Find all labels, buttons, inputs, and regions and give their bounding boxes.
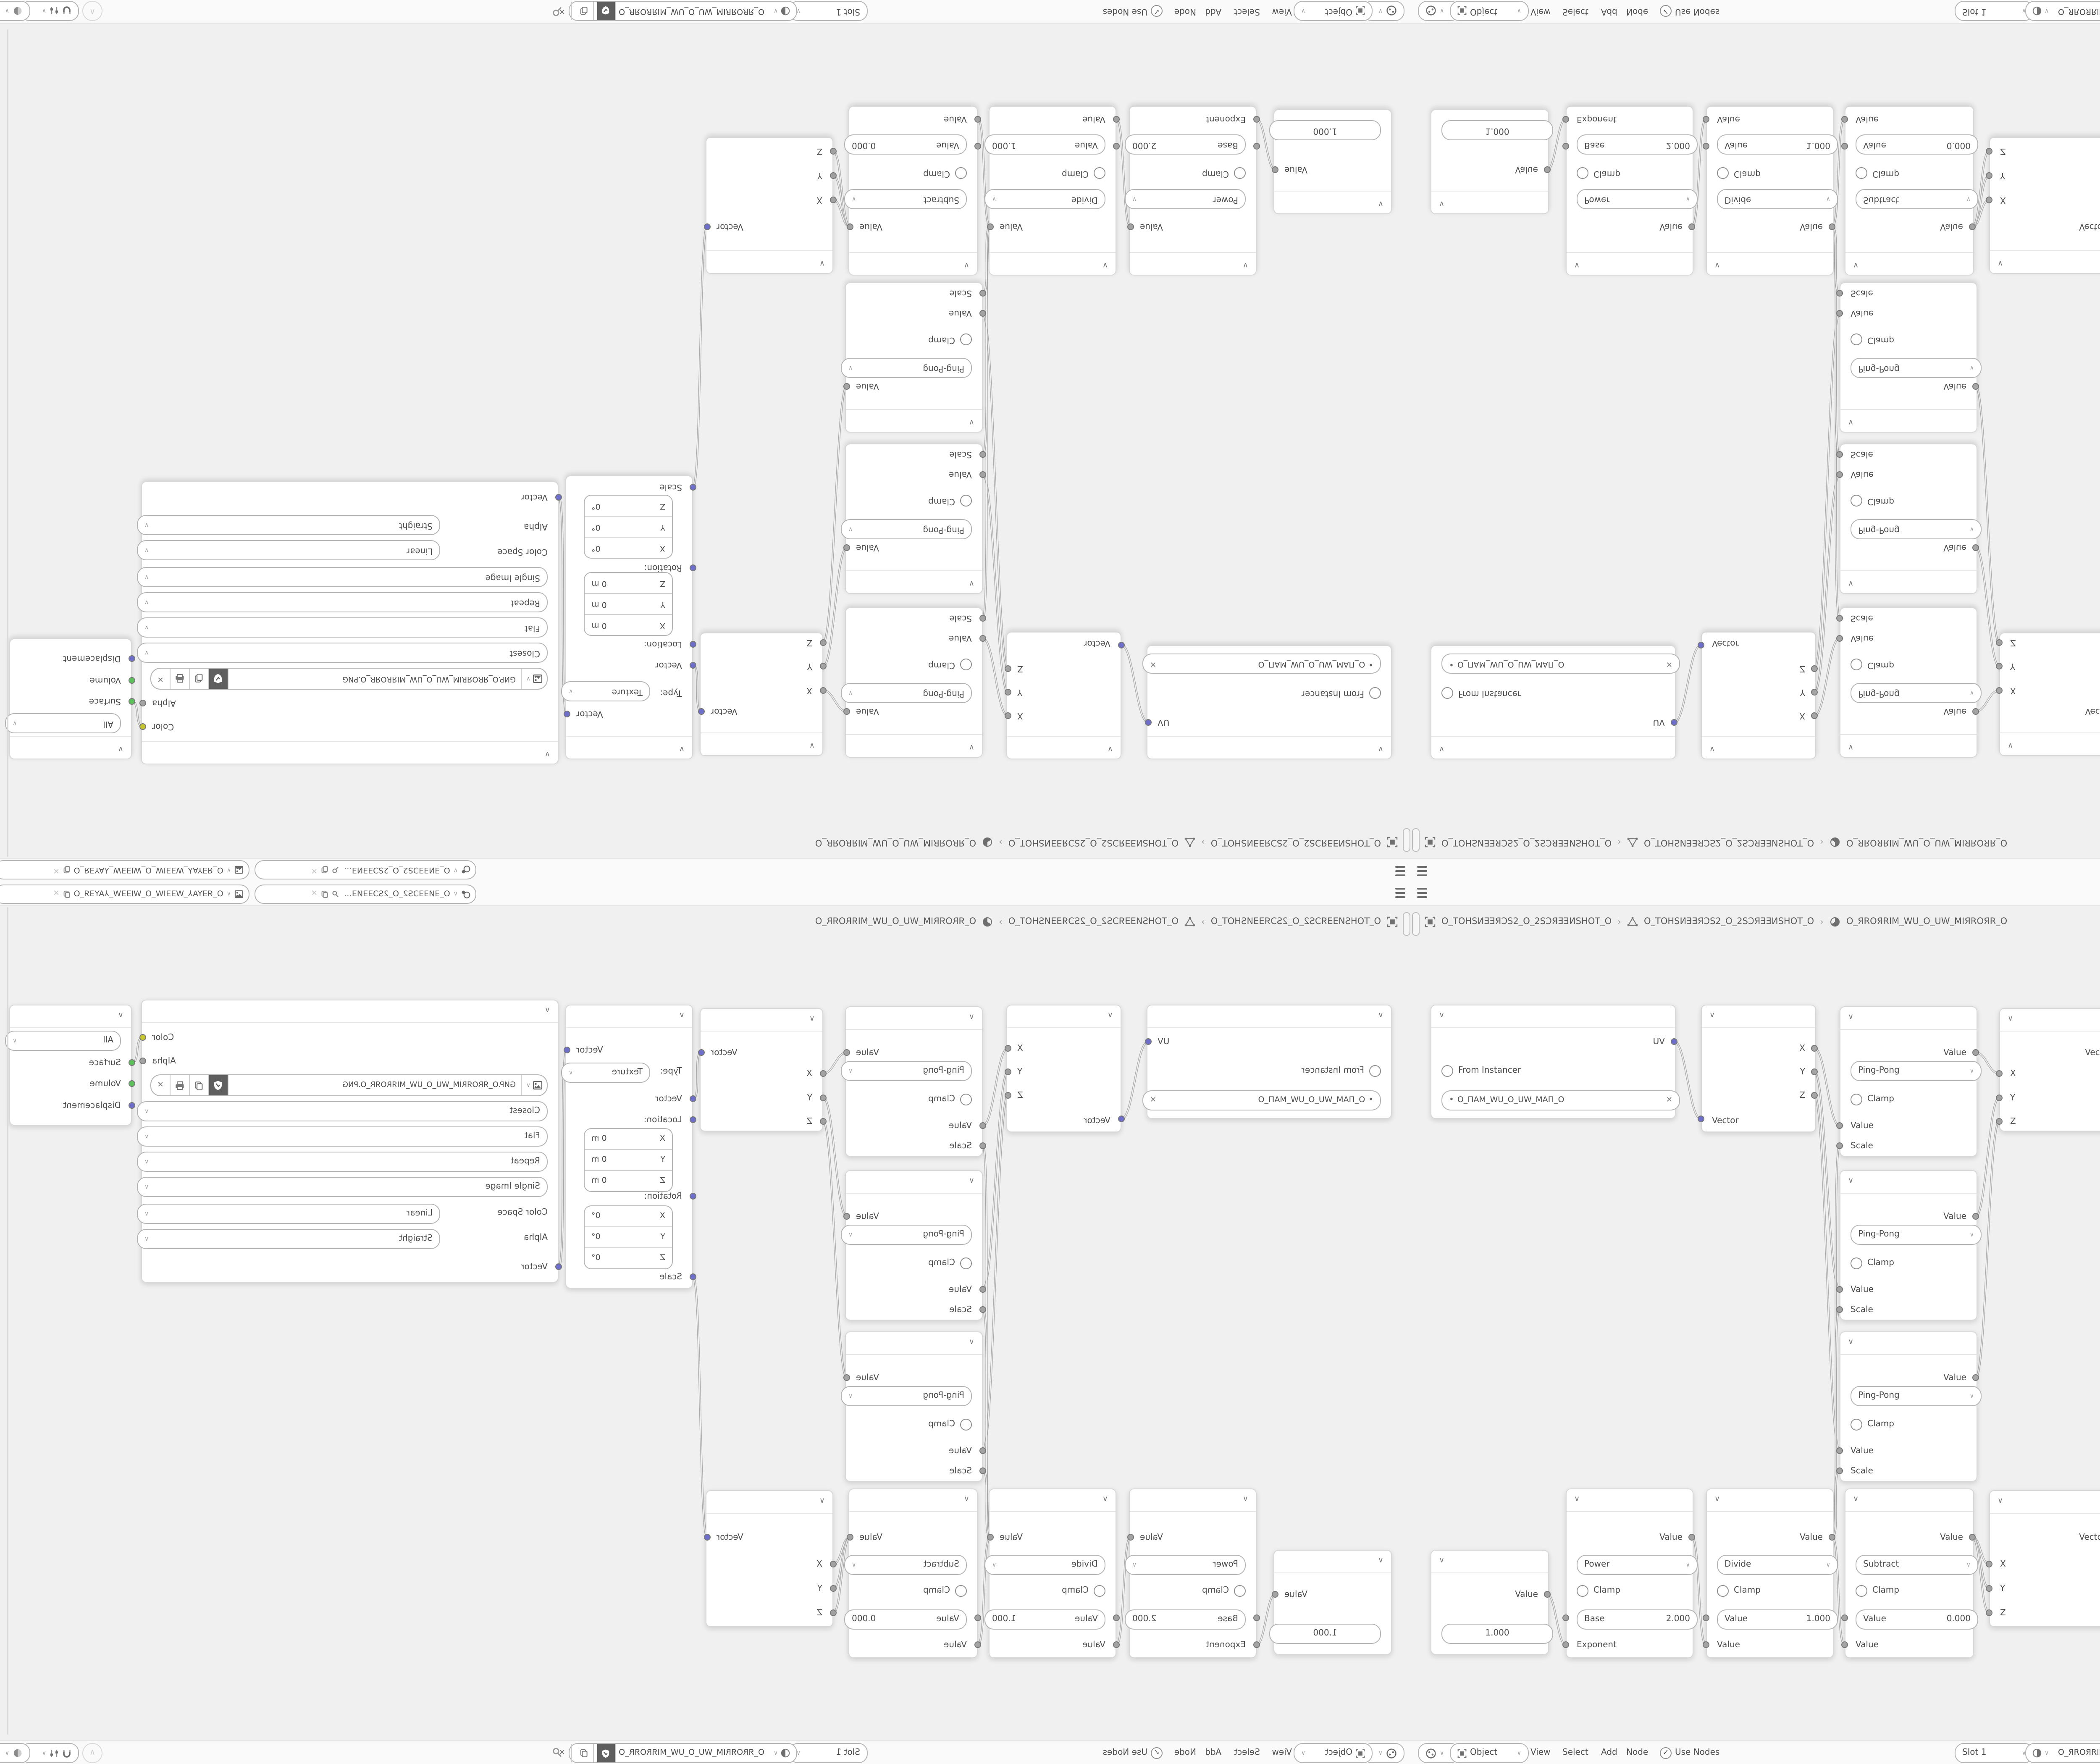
math-operation-select[interactable]: Subtract∨ xyxy=(1856,1555,1978,1575)
collapse-chevron-icon[interactable]: ∨ xyxy=(969,417,974,425)
menu-node[interactable]: Node xyxy=(1626,1749,1648,1757)
node-header[interactable]: ∨ xyxy=(1007,736,1121,759)
collapse-chevron-icon[interactable]: ∨ xyxy=(1714,260,1720,268)
node-header[interactable]: ∨ xyxy=(846,409,982,432)
value-field[interactable]: Value0.000 xyxy=(1856,1609,1978,1630)
unlink-image-button[interactable]: ✕ xyxy=(151,1075,171,1095)
socket-div-val[interactable] xyxy=(1113,143,1120,150)
socket-c2-z[interactable] xyxy=(830,1609,837,1616)
collapse-chevron-icon[interactable]: ∨ xyxy=(1848,579,1853,586)
value-field[interactable]: Value1.000 xyxy=(984,134,1105,155)
collapse-chevron-icon[interactable]: ∨ xyxy=(819,259,825,266)
node-separate-xyz[interactable]: ∨ X Y Z Vector xyxy=(1006,1005,1121,1132)
location-x-field[interactable]: X0 m xyxy=(585,1129,672,1149)
socket-sep-in[interactable] xyxy=(1698,1116,1704,1122)
base-field[interactable]: Base2.000 xyxy=(1125,134,1246,155)
socket-sep-y[interactable] xyxy=(1005,689,1011,696)
socket-map-out[interactable] xyxy=(564,711,570,717)
math-operation-select[interactable]: Ping-Pong∨ xyxy=(1851,358,1982,378)
pin-icon[interactable] xyxy=(552,6,563,17)
unlink-icon[interactable]: ✕ xyxy=(53,890,60,898)
node-header[interactable]: ∨ xyxy=(846,570,982,593)
socket-pow-exp[interactable] xyxy=(1253,116,1260,123)
node-header[interactable]: ∨ xyxy=(10,1005,131,1028)
location-z-field[interactable]: Z0 m xyxy=(585,573,672,594)
socket-pp2-out[interactable] xyxy=(1972,1213,1979,1220)
toolbar-toggle-tab[interactable] xyxy=(1403,828,1410,852)
alpha-mode-select[interactable]: Straight∨ xyxy=(137,515,440,535)
node-header[interactable]: ∨ xyxy=(1840,570,1977,593)
pin-icon[interactable] xyxy=(332,890,339,899)
collapse-chevron-icon[interactable]: ∨ xyxy=(969,1178,974,1185)
collapse-chevron-icon[interactable]: ∨ xyxy=(545,1007,550,1015)
menu-node[interactable]: Node xyxy=(1626,7,1648,15)
math-operation-select[interactable]: Divide∨ xyxy=(1717,189,1838,209)
node-math-pingpong-z[interactable]: ∨ Value Ping-Pong∨ Clamp Value Scale xyxy=(845,282,983,433)
scrollbar[interactable] xyxy=(7,907,8,1735)
socket-pow-base[interactable] xyxy=(1253,1614,1260,1621)
collapse-chevron-icon[interactable]: ∨ xyxy=(809,741,815,748)
output-target-select[interactable]: All∨ xyxy=(5,1031,121,1051)
socket-sub-out[interactable] xyxy=(847,223,853,230)
clamp-checkbox[interactable] xyxy=(1851,333,1862,345)
socket-div-out[interactable] xyxy=(1829,223,1835,230)
socket-sep-z[interactable] xyxy=(1005,1092,1011,1099)
math-operation-select[interactable]: Divide∨ xyxy=(1717,1555,1838,1575)
socket-mo-volume[interactable] xyxy=(129,677,135,684)
node-value[interactable]: ∨ Value 1.000 xyxy=(1273,109,1392,214)
source-select[interactable]: Single Image∨ xyxy=(137,567,548,587)
clamp-checkbox[interactable] xyxy=(1851,1094,1862,1105)
socket-c1-out[interactable] xyxy=(698,708,705,715)
base-field[interactable]: Base2.000 xyxy=(1577,1609,1698,1630)
use-nodes-checkbox[interactable]: ✓ xyxy=(1660,5,1672,17)
node-combine-xyz-scale[interactable]: ∨ Vector X Y Z xyxy=(706,1490,833,1627)
socket-sub-in[interactable] xyxy=(974,116,981,123)
node-header[interactable]: ∨ xyxy=(1274,191,1391,213)
clamp-checkbox[interactable] xyxy=(1851,1257,1862,1269)
node-header[interactable]: ∨ xyxy=(1431,191,1548,213)
node-header[interactable]: ∨ xyxy=(1130,1489,1256,1512)
node-header[interactable]: ∨ xyxy=(1707,1489,1833,1512)
node-header[interactable]: ∨ xyxy=(142,1000,558,1023)
node-header[interactable]: ∨ xyxy=(1007,1005,1121,1028)
collapse-chevron-icon[interactable]: ∨ xyxy=(1108,1012,1113,1020)
fake-user-button[interactable] xyxy=(209,669,228,689)
collapse-chevron-icon[interactable]: ∨ xyxy=(679,1012,685,1020)
node-uv-map[interactable]: ∨ UV From Instancer • O_ПAM_WU_O_UW_MAП_… xyxy=(1431,1005,1676,1119)
socket-pp1-scale[interactable] xyxy=(1836,1142,1843,1149)
node-header[interactable]: ∨ xyxy=(1707,252,1833,275)
socket-sub-out[interactable] xyxy=(1969,223,1976,230)
node-material-output[interactable]: ∨ All∨ Surface Volume Displacement xyxy=(9,638,132,759)
node-mapping[interactable]: ∨ Vector Type: Texture∨ Vector Location:… xyxy=(565,475,693,759)
node-combine-xyz-scale[interactable]: ∨ Vector X Y Z xyxy=(706,137,833,274)
socket-div-in[interactable] xyxy=(1113,1641,1120,1648)
socket-div-val[interactable] xyxy=(1703,1614,1709,1621)
socket-map-rot[interactable] xyxy=(690,564,696,571)
socket-c2-x[interactable] xyxy=(830,1561,837,1567)
rotation-y-field[interactable]: Y0° xyxy=(585,1226,672,1247)
socket-sep-in[interactable] xyxy=(1698,642,1704,648)
use-nodes-checkbox[interactable]: ✓ xyxy=(1151,5,1163,17)
node-image-texture[interactable]: ∨ Color Alpha ∨ GИP.O_ЯROЯRIM_WU_O_UW_MI… xyxy=(141,481,559,764)
fake-user-button[interactable] xyxy=(209,1075,228,1095)
breadcrumb-object[interactable]: O_TOHSИƎƎЯƆS2_O_2SƆЯƎƎИSHOT_O xyxy=(1441,838,1612,847)
pin-icon[interactable] xyxy=(552,1747,563,1758)
socket-sep-y[interactable] xyxy=(1811,689,1818,696)
menu-view[interactable]: View xyxy=(1272,1749,1292,1757)
use-nodes-checkbox[interactable]: ✓ xyxy=(1660,1747,1672,1759)
math-operation-select[interactable]: Ping-Pong∨ xyxy=(841,358,972,378)
node-header[interactable]: ∨ xyxy=(846,1007,982,1030)
location-y-field[interactable]: Y0 m xyxy=(585,594,672,615)
socket-pp3-val[interactable] xyxy=(1836,310,1843,317)
socket-pp2-val[interactable] xyxy=(979,1286,986,1293)
breadcrumb-object[interactable]: O_TOHSИƎƎЯƆS2_O_2SƆЯƎƎИSHOT_O xyxy=(1441,917,1612,926)
node-header[interactable]: ∨ xyxy=(142,741,558,764)
collapse-chevron-icon[interactable]: ∨ xyxy=(969,743,974,750)
clamp-checkbox[interactable] xyxy=(1094,1585,1105,1597)
node-uv-map[interactable]: ∨ UV From Instancer • O_ПAM_WU_O_UW_MAП_… xyxy=(1147,645,1392,759)
socket-val-out[interactable] xyxy=(1272,166,1278,173)
collapse-chevron-icon[interactable]: ∨ xyxy=(1439,744,1444,752)
node-uv-map[interactable]: ∨ UV From Instancer • O_ПAM_WU_O_UW_MAП_… xyxy=(1147,1005,1392,1119)
uv-map-select[interactable]: • O_ПAM_WU_O_UW_MAП_O ✕ xyxy=(1441,1090,1680,1110)
menu-hamburger-icon[interactable] xyxy=(1417,865,1427,876)
material-selector[interactable]: ∨ O_ЯROЯRIM_WU_O_UW_MIЯROЯR_O ✕ xyxy=(569,1,797,21)
output-target-select[interactable]: All∨ xyxy=(5,713,121,733)
shader-type-select[interactable]: Object ∨ xyxy=(1294,1,1373,21)
socket-sep-z[interactable] xyxy=(1811,1092,1818,1099)
shader-type-select[interactable]: Object ∨ xyxy=(1450,1743,1529,1763)
menu-add[interactable]: Add xyxy=(1205,1749,1221,1757)
copy-icon[interactable] xyxy=(321,890,328,899)
clear-icon[interactable]: ✕ xyxy=(1150,660,1156,667)
socket-mo-disp[interactable] xyxy=(129,655,135,662)
toolbar-toggle-tab[interactable] xyxy=(1403,912,1410,936)
clamp-checkbox[interactable] xyxy=(960,1094,972,1105)
socket-c1-z[interactable] xyxy=(1996,639,2003,646)
node-header[interactable]: ∨ xyxy=(701,1009,822,1032)
rotation-fields[interactable]: X0° Y0° Z0° xyxy=(584,495,673,559)
socket-pp3-scale[interactable] xyxy=(1836,1467,1843,1474)
socket-c2-y[interactable] xyxy=(1986,172,1992,179)
from-instancer-checkbox[interactable] xyxy=(1441,1065,1453,1077)
socket-pow-out[interactable] xyxy=(1127,1534,1134,1541)
socket-sep-x[interactable] xyxy=(1005,1045,1011,1052)
node-header[interactable]: ∨ xyxy=(849,252,977,275)
location-z-field[interactable]: Z0 m xyxy=(585,1170,672,1191)
collapse-chevron-icon[interactable]: ∨ xyxy=(964,260,969,268)
clamp-checkbox[interactable] xyxy=(1717,1585,1729,1597)
collapse-chevron-icon[interactable]: ∨ xyxy=(969,579,974,586)
socket-div-out[interactable] xyxy=(987,1534,994,1541)
node-header[interactable]: ∨ xyxy=(701,732,822,755)
breadcrumb-mesh[interactable]: O_TOHSИƎƎЯƆS2_O_2SƆЯƎƎИSHOT_O xyxy=(1008,838,1179,847)
socket-div-val[interactable] xyxy=(1703,143,1709,150)
image-browse-button[interactable]: ∨ xyxy=(522,669,547,689)
clamp-checkbox[interactable] xyxy=(1856,167,1867,179)
math-operation-select[interactable]: Ping-Pong∨ xyxy=(1851,1386,1982,1406)
socket-sub-val[interactable] xyxy=(1841,1614,1848,1621)
socket-map-scale[interactable] xyxy=(690,1273,696,1280)
socket-pp3-out[interactable] xyxy=(1972,1374,1979,1381)
pack-image-button[interactable] xyxy=(171,669,190,689)
node-math-pingpong-y[interactable]: ∨ Value Ping-Pong∨ Clamp Value Scale xyxy=(845,1170,983,1320)
socket-c1-x[interactable] xyxy=(820,687,827,694)
projection-select[interactable]: Flat∨ xyxy=(137,617,548,638)
node-math-pingpong-z[interactable]: ∨ Value Ping-Pong∨ Clamp Value Scale xyxy=(1840,1331,1977,1482)
clamp-checkbox[interactable] xyxy=(955,167,967,179)
menu-select[interactable]: Select xyxy=(1562,1749,1588,1757)
collapse-chevron-icon[interactable]: ∨ xyxy=(1574,260,1580,268)
clamp-checkbox[interactable] xyxy=(960,1257,972,1269)
collapse-chevron-icon[interactable]: ∨ xyxy=(2008,741,2013,748)
socket-pp2-val[interactable] xyxy=(979,471,986,478)
collapse-chevron-icon[interactable]: ∨ xyxy=(1848,1178,1853,1185)
node-header[interactable]: ∨ xyxy=(1147,736,1391,759)
viewlayer-selector[interactable]: ∨ O_ЯƎYA⅄_WƎƎIW_O_WIƎƎW_⅄AYƎЯ_O ✕ xyxy=(0,885,249,904)
socket-sep-x[interactable] xyxy=(1811,712,1818,719)
location-fields[interactable]: X0 m Y0 m Z0 m xyxy=(584,572,673,636)
overlay-toggle-button[interactable]: ∧ xyxy=(82,1743,102,1763)
copy-material-button[interactable] xyxy=(575,2,593,20)
collapse-chevron-icon[interactable]: ∨ xyxy=(1574,1496,1580,1504)
collapse-chevron-icon[interactable]: ∨ xyxy=(1378,1012,1383,1020)
breadcrumb-material[interactable]: O_ЯROЯRIM_WU_O_UW_MIЯROЯR_O xyxy=(815,917,976,926)
material-selector[interactable]: ∨ O_ЯROЯRIM_WU_O_UW_MIЯROЯR_O ✕ xyxy=(569,1743,797,1763)
math-operation-select[interactable]: Power∨ xyxy=(1577,1555,1698,1575)
socket-map-out[interactable] xyxy=(564,1047,570,1053)
socket-map-rot[interactable] xyxy=(690,1193,696,1200)
rotation-x-field[interactable]: X0° xyxy=(585,538,672,558)
base-field[interactable]: Base2.000 xyxy=(1125,1609,1246,1630)
collapse-chevron-icon[interactable]: ∨ xyxy=(2008,1016,2013,1023)
node-math-divide[interactable]: ∨ Value Divide∨ Clamp Value1.000 Value xyxy=(989,106,1116,276)
shader-type-select[interactable]: Object ∨ xyxy=(1294,1743,1373,1763)
node-header[interactable]: ∨ xyxy=(706,1491,832,1514)
socket-pow-exp[interactable] xyxy=(1562,116,1569,123)
material-slot-select[interactable]: Slot 1 ∨ xyxy=(789,1743,868,1763)
node-math-divide[interactable]: ∨ Value Divide∨ Clamp Value1.000 Value xyxy=(1706,106,1834,276)
socket-c1-y[interactable] xyxy=(1996,1095,2003,1101)
math-operation-select[interactable]: Power∨ xyxy=(1577,189,1698,209)
socket-pp3-scale[interactable] xyxy=(979,290,986,297)
node-header[interactable]: ∨ xyxy=(1567,252,1693,275)
copy-image-button[interactable] xyxy=(190,669,209,689)
value-field[interactable]: Value0.000 xyxy=(1856,134,1978,155)
socket-val-out[interactable] xyxy=(1544,1591,1551,1598)
node-header[interactable]: ∨ xyxy=(1845,252,1973,275)
collapse-chevron-icon[interactable]: ∨ xyxy=(1848,417,1853,425)
node-math-pingpong-y[interactable]: ∨ Value Ping-Pong∨ Clamp Value Scale xyxy=(1840,444,1977,594)
material-browse-button[interactable]: ∨ xyxy=(2026,1748,2055,1758)
collapse-chevron-icon[interactable]: ∨ xyxy=(1378,199,1383,207)
node-header[interactable]: ∨ xyxy=(1130,252,1256,275)
math-operation-select[interactable]: Ping-Pong∨ xyxy=(841,1061,972,1081)
node-header[interactable]: ∨ xyxy=(1431,1005,1675,1028)
socket-pow-out[interactable] xyxy=(1688,1534,1695,1541)
shader-type-select[interactable]: Object ∨ xyxy=(1450,1,1529,21)
collapse-chevron-icon[interactable]: ∨ xyxy=(1439,199,1444,207)
socket-img-alpha[interactable] xyxy=(139,1058,146,1064)
collapse-chevron-icon[interactable]: ∨ xyxy=(1243,260,1248,268)
socket-div-in[interactable] xyxy=(1113,116,1120,123)
socket-c2-out[interactable] xyxy=(704,223,711,230)
node-mapping[interactable]: ∨ Vector Type: Texture∨ Vector Location:… xyxy=(565,1005,693,1289)
toolbar-toggle-tab[interactable] xyxy=(1412,912,1420,936)
socket-pp1-out[interactable] xyxy=(843,1049,850,1056)
collapse-chevron-icon[interactable]: ∨ xyxy=(1848,1339,1853,1347)
rotation-z-field[interactable]: Z0° xyxy=(585,496,672,517)
unlink-image-button[interactable]: ✕ xyxy=(151,669,171,689)
value-field[interactable]: 1.000 xyxy=(1269,1624,1381,1644)
material-browse-button[interactable]: ∨ xyxy=(768,1748,796,1758)
clamp-checkbox[interactable] xyxy=(1717,167,1729,179)
collapse-chevron-icon[interactable]: ∨ xyxy=(819,1498,825,1505)
node-header[interactable]: ∨ xyxy=(1845,1489,1973,1512)
node-header[interactable]: ∨ xyxy=(990,1489,1116,1512)
socket-c1-x[interactable] xyxy=(1996,687,2003,694)
location-y-field[interactable]: Y0 m xyxy=(585,1149,672,1170)
node-math-subtract[interactable]: ∨ Value Subtract∨ Clamp Value0.000 Value xyxy=(848,106,978,276)
socket-div-in[interactable] xyxy=(1703,116,1709,123)
menu-hamburger-icon[interactable] xyxy=(1395,865,1405,876)
node-header[interactable]: ∨ xyxy=(1702,1005,1815,1028)
node-header[interactable]: ∨ xyxy=(1840,1007,1977,1030)
socket-img-alpha[interactable] xyxy=(139,700,146,706)
node-header[interactable]: ∨ xyxy=(1840,1332,1977,1355)
breadcrumb-object[interactable]: O_TOHSИƎƎЯƆS2_O_2SƆЯƎƎИSHOT_O xyxy=(1211,838,1381,847)
value-field[interactable]: Value0.000 xyxy=(844,1609,967,1630)
socket-c2-x[interactable] xyxy=(1986,1561,1992,1567)
math-operation-select[interactable]: Power∨ xyxy=(1125,189,1246,209)
uv-map-select[interactable]: • O_ПAM_WU_O_UW_MAП_O ✕ xyxy=(1441,654,1680,674)
node-image-texture[interactable]: ∨ Color Alpha ∨ GИP.O_ЯROЯRIM_WU_O_UW_MI… xyxy=(141,1000,559,1283)
socket-c1-out[interactable] xyxy=(698,1049,705,1056)
socket-sep-z[interactable] xyxy=(1005,665,1011,672)
breadcrumb-material[interactable]: O_ЯROЯRIM_WU_O_UW_MIЯROЯR_O xyxy=(815,838,976,847)
breadcrumb-material[interactable]: O_ЯROЯRIM_WU_O_UW_MIЯROЯR_O xyxy=(1846,917,2007,926)
socket-sub-val[interactable] xyxy=(1841,143,1848,150)
node-header[interactable]: ∨ xyxy=(1431,736,1675,759)
value-field[interactable]: 1.000 xyxy=(1269,120,1381,140)
socket-sep-x[interactable] xyxy=(1811,1045,1818,1052)
clamp-checkbox[interactable] xyxy=(1577,1585,1588,1597)
socket-pp1-scale[interactable] xyxy=(1836,615,1843,622)
node-header[interactable]: ∨ xyxy=(846,1171,982,1194)
socket-pp1-out[interactable] xyxy=(843,708,850,715)
math-operation-select[interactable]: Ping-Pong∨ xyxy=(1851,1061,1982,1081)
collapse-chevron-icon[interactable]: ∨ xyxy=(118,744,123,752)
base-field[interactable]: Base2.000 xyxy=(1577,134,1698,155)
value-field[interactable]: Value1.000 xyxy=(1717,1609,1838,1630)
unlink-icon[interactable]: ✕ xyxy=(53,866,60,874)
scrollbar[interactable] xyxy=(7,29,8,857)
node-uv-map[interactable]: ∨ UV From Instancer • O_ПAM_WU_O_UW_MAП_… xyxy=(1431,645,1676,759)
collapse-chevron-icon[interactable]: ∨ xyxy=(1439,1012,1444,1020)
from-instancer-checkbox[interactable] xyxy=(1369,1065,1381,1077)
clamp-checkbox[interactable] xyxy=(1577,167,1588,179)
math-operation-select[interactable]: Ping-Pong∨ xyxy=(841,1225,972,1245)
socket-img-color[interactable] xyxy=(139,723,146,730)
clamp-checkbox[interactable] xyxy=(960,495,972,507)
math-operation-select[interactable]: Ping-Pong∨ xyxy=(1851,1225,1982,1245)
socket-c2-y[interactable] xyxy=(830,1585,837,1592)
socket-sub-in[interactable] xyxy=(1841,1641,1848,1648)
node-combine-xyz[interactable]: ∨ Vector X Y Z xyxy=(700,633,823,756)
node-header[interactable]: ∨ xyxy=(1702,736,1815,759)
socket-c2-x[interactable] xyxy=(830,197,837,203)
node-math-pingpong-x[interactable]: ∨ Value Ping-Pong∨ Clamp Value Scale xyxy=(845,607,983,758)
socket-pp3-val[interactable] xyxy=(979,1447,986,1454)
node-math-subtract[interactable]: ∨ Value Subtract∨ Clamp Value0.000 Value xyxy=(848,1488,978,1658)
socket-pp1-out[interactable] xyxy=(1972,708,1979,715)
socket-c1-y[interactable] xyxy=(820,1095,827,1101)
breadcrumb-mesh[interactable]: O_TOHSИƎƎЯƆS2_O_2SƆЯƎƎИSHOT_O xyxy=(1644,917,1814,926)
node-combine-xyz-scale[interactable]: ∨ Vector X Y Z xyxy=(1989,1490,2100,1627)
socket-sep-z[interactable] xyxy=(1811,665,1818,672)
menu-select[interactable]: Select xyxy=(1234,7,1260,15)
from-instancer-checkbox[interactable] xyxy=(1369,687,1381,699)
socket-mo-volume[interactable] xyxy=(129,1080,135,1087)
collapse-chevron-icon[interactable]: ∨ xyxy=(1853,260,1858,268)
collapse-chevron-icon[interactable]: ∨ xyxy=(1853,1496,1858,1504)
socket-c2-y[interactable] xyxy=(830,172,837,179)
alpha-mode-select[interactable]: Straight∨ xyxy=(137,1229,440,1249)
unlink-icon[interactable]: ✕ xyxy=(311,890,318,898)
node-header[interactable]: ∨ xyxy=(2000,732,2100,755)
socket-c1-y[interactable] xyxy=(820,663,827,669)
node-math-pingpong-y[interactable]: ∨ Value Ping-Pong∨ Clamp Value Scale xyxy=(845,444,983,594)
node-combine-xyz[interactable]: ∨ Vector X Y Z xyxy=(700,1008,823,1131)
socket-sub-out[interactable] xyxy=(847,1534,853,1541)
node-math-divide[interactable]: ∨ Value Divide∨ Clamp Value1.000 Value xyxy=(1706,1488,1834,1658)
scene-selector[interactable]: ∨ O_ƎͶƎƎƆS2_O_2SƆƎƎͶƎ_O ✕ xyxy=(255,885,476,904)
node-material-output[interactable]: ∨ All∨ Surface Volume Displacement xyxy=(9,1005,132,1126)
rotation-y-field[interactable]: Y0° xyxy=(585,517,672,538)
node-header[interactable]: ∨ xyxy=(1840,409,1977,432)
socket-img-vec[interactable] xyxy=(555,494,562,501)
node-header[interactable]: ∨ xyxy=(1840,734,1977,757)
collapse-chevron-icon[interactable]: ∨ xyxy=(1709,1012,1715,1020)
socket-c2-out[interactable] xyxy=(704,1534,711,1541)
node-math-power[interactable]: ∨ Value Power∨ Clamp Base2.000 Exponent xyxy=(1566,106,1693,276)
socket-pp1-val[interactable] xyxy=(1836,635,1843,642)
node-header[interactable]: ∨ xyxy=(1431,1551,1548,1573)
node-value[interactable]: ∨ Value 1.000 xyxy=(1431,109,1549,214)
math-operation-select[interactable]: Divide∨ xyxy=(984,189,1105,209)
projection-select[interactable]: Flat∨ xyxy=(137,1126,548,1147)
value-field[interactable]: Value0.000 xyxy=(844,134,967,155)
node-math-pingpong-z[interactable]: ∨ Value Ping-Pong∨ Clamp Value Scale xyxy=(1840,282,1977,433)
collapse-chevron-icon[interactable]: ∨ xyxy=(1108,744,1113,752)
material-browse-button[interactable]: ∨ xyxy=(2026,6,2055,16)
socket-pp1-scale[interactable] xyxy=(979,615,986,622)
node-combine-xyz[interactable]: ∨ Vector X Y Z xyxy=(1999,633,2100,756)
socket-sub-in[interactable] xyxy=(974,1641,981,1648)
socket-uv-out[interactable] xyxy=(1671,1038,1677,1045)
pin-icon[interactable] xyxy=(332,865,339,874)
clear-icon[interactable]: ✕ xyxy=(1150,1097,1156,1104)
clamp-checkbox[interactable] xyxy=(1851,659,1862,670)
material-slot-select[interactable]: Slot 1 ∨ xyxy=(1955,1,2034,21)
collapse-chevron-icon[interactable]: ∨ xyxy=(1378,744,1383,752)
source-select[interactable]: Single Image∨ xyxy=(137,1177,548,1197)
math-operation-select[interactable]: Ping-Pong∨ xyxy=(841,519,972,539)
breadcrumb-mesh[interactable]: O_TOHSИƎƎЯƆS2_O_2SƆЯƎƎИSHOT_O xyxy=(1644,838,1814,847)
